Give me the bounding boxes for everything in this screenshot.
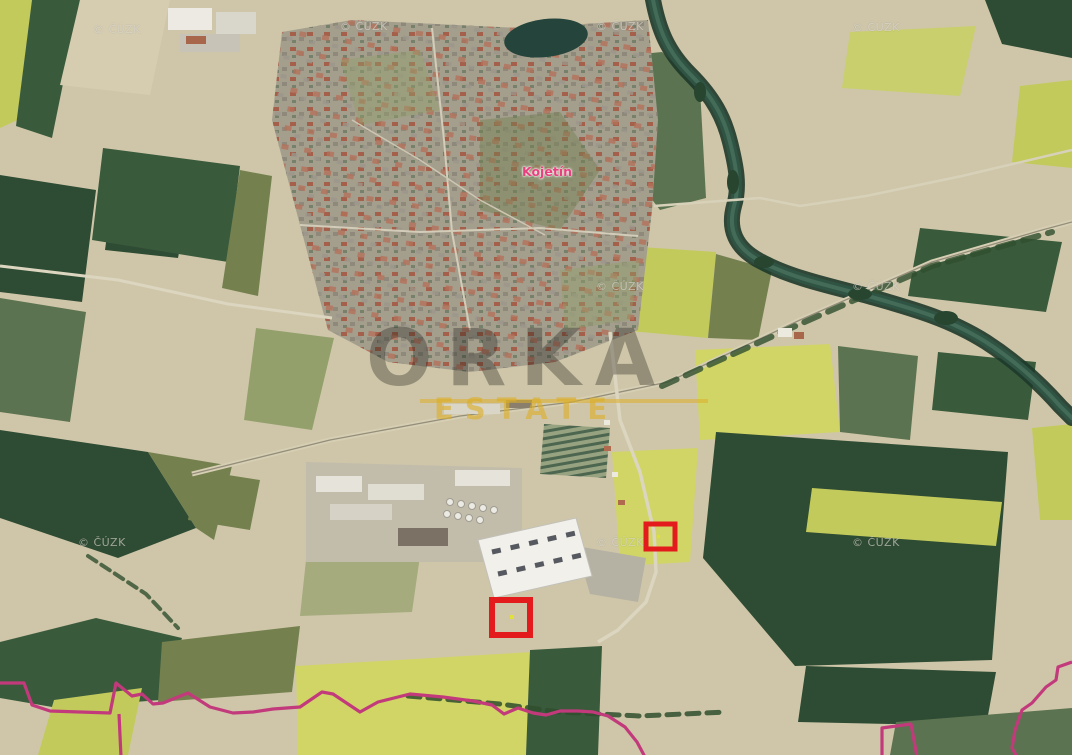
map-overlay: [0, 0, 1072, 755]
aerial-map-canvas: ORKA ESTATE © ČÚZK© ČÚZK© ČÚZK© ČÚZK© ČÚ…: [0, 0, 1072, 755]
cadastre-boundary-line: [882, 724, 917, 755]
parcel-marker-dot: [657, 535, 660, 538]
parcel-highlight-marker: [646, 524, 675, 549]
cadastre-boundary-line: [1012, 662, 1072, 755]
parcel-marker-dot: [510, 615, 514, 619]
cadastre-boundary-line: [119, 714, 121, 755]
cadastre-boundary-line: [0, 683, 645, 755]
